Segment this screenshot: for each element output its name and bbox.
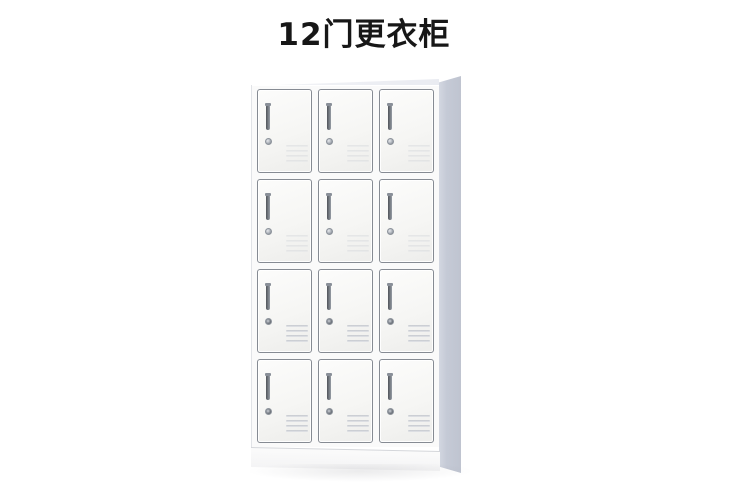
vent-slots-icon	[286, 415, 308, 432]
key-lock-icon	[387, 228, 394, 235]
cabinet-side-panel	[439, 76, 461, 473]
vent-slots-icon	[347, 415, 369, 432]
door-handle-icon	[327, 285, 331, 310]
locker-door	[257, 179, 312, 263]
locker-door	[318, 179, 373, 263]
locker-door	[257, 89, 312, 173]
vent-slots-icon	[286, 325, 308, 342]
locker-door	[318, 359, 373, 443]
door-handle-icon	[266, 105, 270, 130]
vent-slots-icon	[347, 145, 369, 162]
locker-door	[379, 89, 434, 173]
vent-slots-icon	[347, 325, 369, 342]
key-lock-icon	[387, 318, 394, 325]
key-lock-icon	[387, 138, 394, 145]
key-lock-icon	[326, 228, 333, 235]
cabinet-front-face	[251, 85, 439, 447]
product-page: 12门更衣柜	[0, 0, 750, 499]
key-lock-icon	[326, 318, 333, 325]
vent-slots-icon	[286, 145, 308, 162]
key-lock-icon	[265, 138, 272, 145]
vent-slots-icon	[408, 325, 430, 342]
door-handle-icon	[388, 105, 392, 130]
door-handle-icon	[327, 375, 331, 400]
key-lock-icon	[265, 318, 272, 325]
locker-door	[379, 179, 434, 263]
door-handle-icon	[266, 375, 270, 400]
locker-door	[257, 269, 312, 353]
key-lock-icon	[326, 408, 333, 415]
door-handle-icon	[388, 375, 392, 400]
key-lock-icon	[387, 408, 394, 415]
vent-slots-icon	[408, 145, 430, 162]
door-handle-icon	[327, 195, 331, 220]
locker-door	[318, 269, 373, 353]
locker-cabinet-image	[0, 0, 750, 499]
vent-slots-icon	[408, 235, 430, 252]
door-handle-icon	[327, 105, 331, 130]
vent-slots-icon	[286, 235, 308, 252]
locker-door	[379, 269, 434, 353]
locker-door	[257, 359, 312, 443]
locker-door	[318, 89, 373, 173]
key-lock-icon	[326, 138, 333, 145]
door-handle-icon	[388, 285, 392, 310]
door-grid	[252, 85, 439, 447]
locker-door	[379, 359, 434, 443]
door-handle-icon	[388, 195, 392, 220]
key-lock-icon	[265, 228, 272, 235]
vent-slots-icon	[347, 235, 369, 252]
cabinet-shadow	[246, 464, 474, 482]
vent-slots-icon	[408, 415, 430, 432]
key-lock-icon	[265, 408, 272, 415]
door-handle-icon	[266, 285, 270, 310]
door-handle-icon	[266, 195, 270, 220]
